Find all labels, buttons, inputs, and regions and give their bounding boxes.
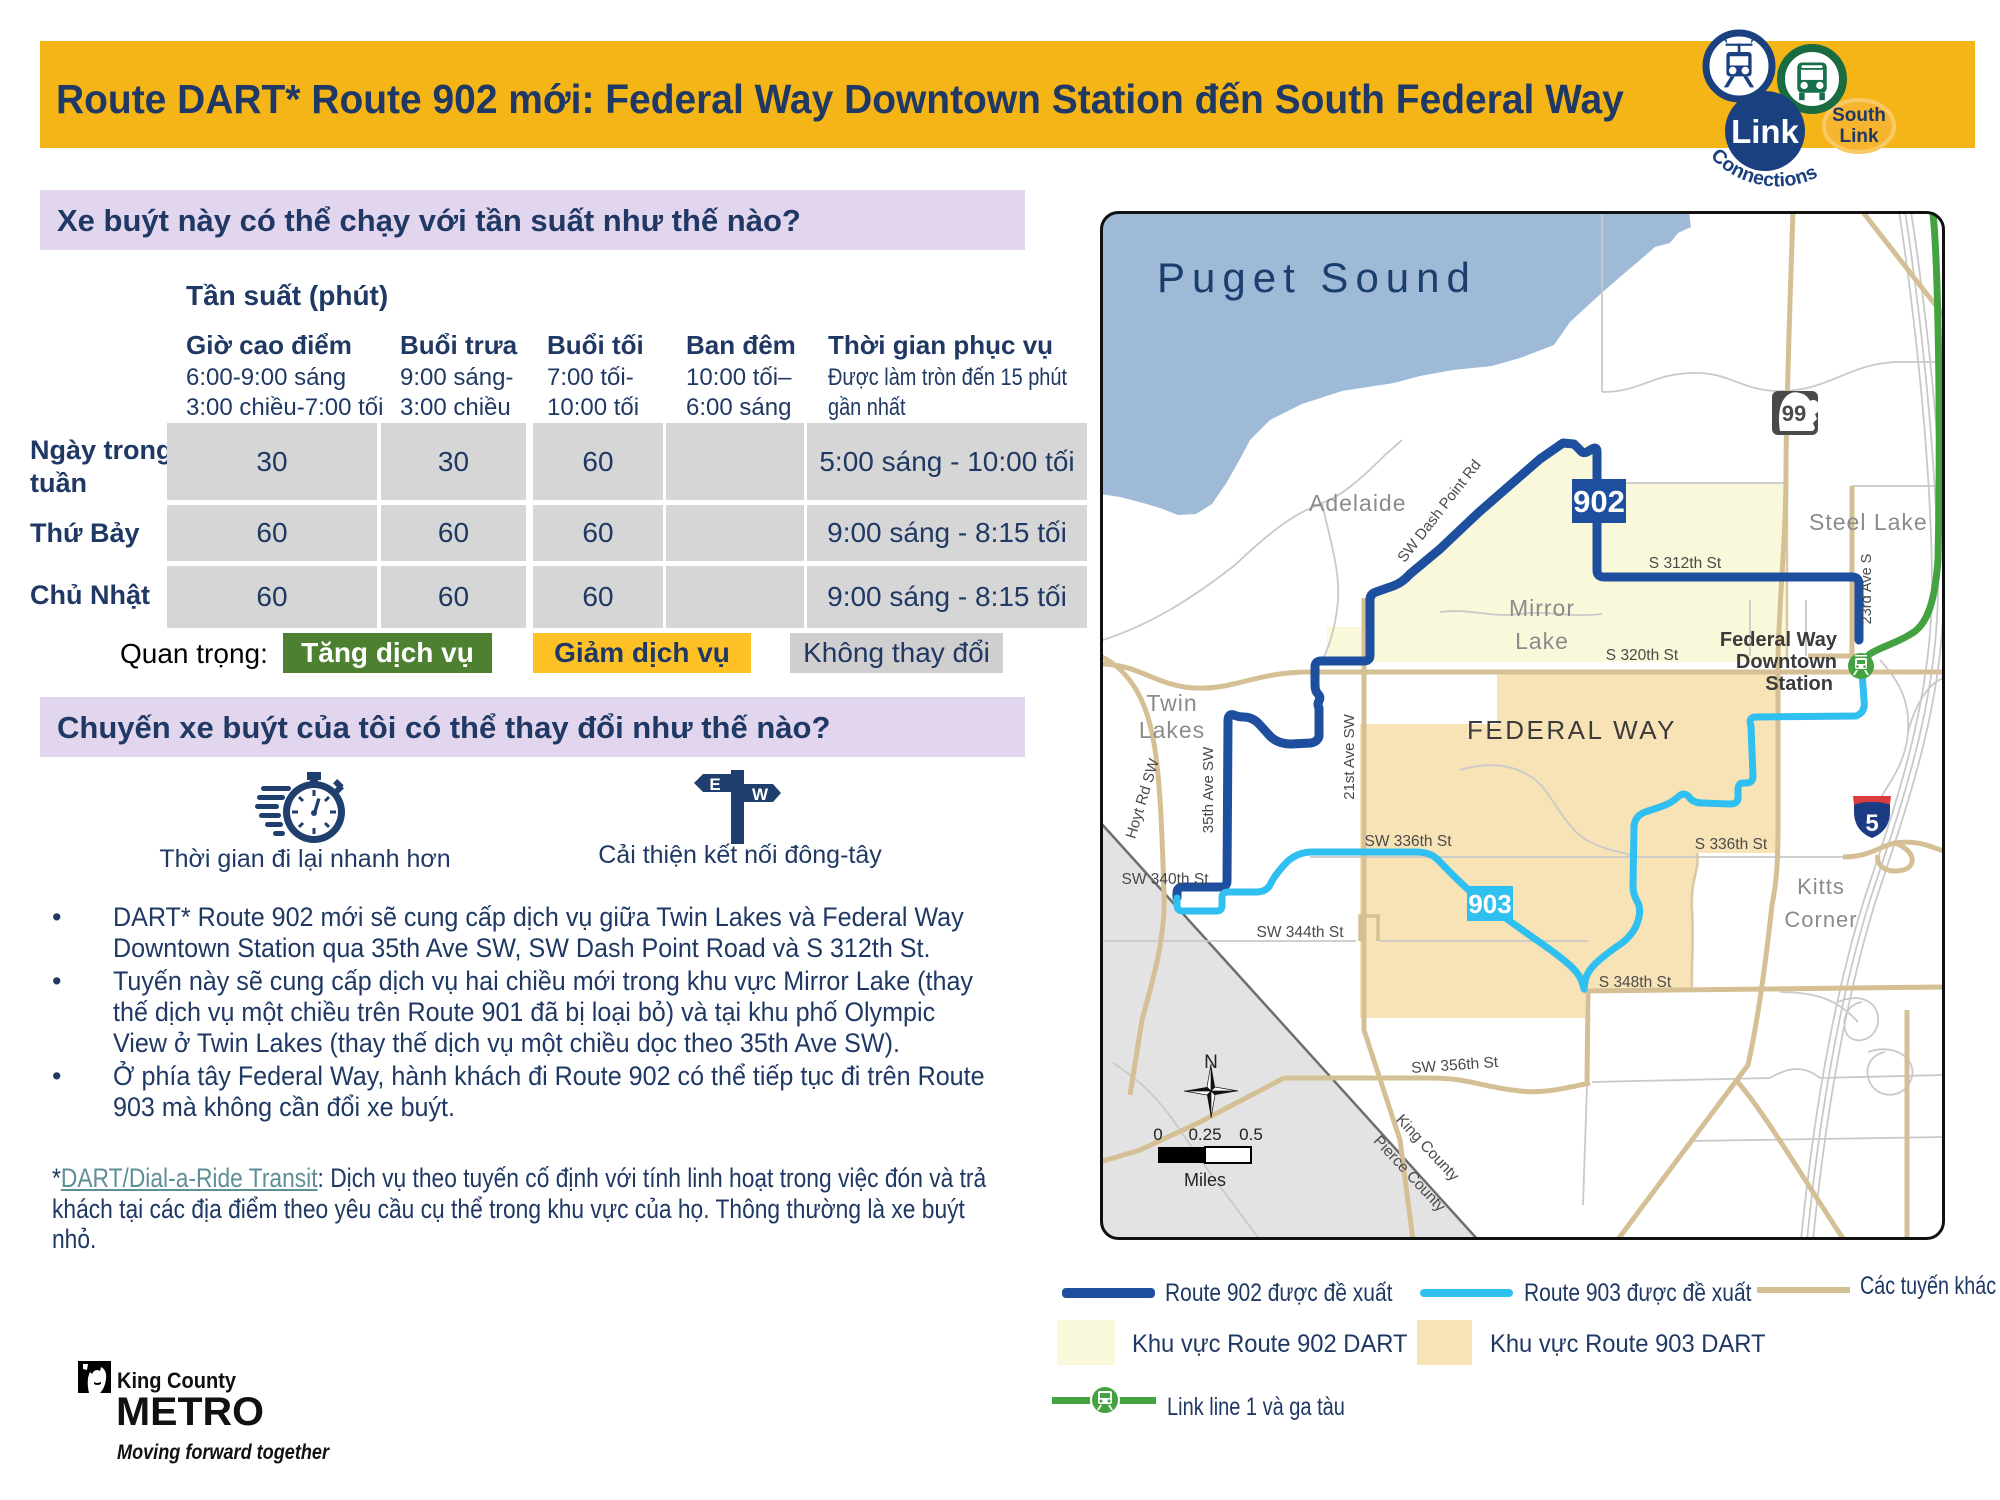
svg-text:Steel Lake: Steel Lake — [1809, 509, 1928, 535]
svg-text:South: South — [1832, 105, 1886, 126]
svg-text:21st Ave SW: 21st Ave SW — [1341, 713, 1358, 799]
svg-text:SW 340th St: SW 340th St — [1121, 871, 1209, 888]
svg-text:Downtown: Downtown — [1736, 651, 1837, 673]
svg-text:0.25: 0.25 — [1188, 1125, 1221, 1144]
svg-text:Twin: Twin — [1146, 690, 1197, 716]
svg-text:23rd Ave S: 23rd Ave S — [1859, 554, 1875, 625]
svg-text:5: 5 — [1865, 810, 1878, 837]
svg-text:Lakes: Lakes — [1139, 717, 1205, 743]
svg-text:S 336th St: S 336th St — [1695, 836, 1768, 853]
svg-text:FEDERAL WAY: FEDERAL WAY — [1467, 715, 1677, 745]
svg-text:Moving forward together: Moving forward together — [117, 1441, 331, 1464]
svg-text:902: 902 — [1573, 484, 1625, 519]
svg-text:W: W — [752, 785, 769, 804]
svg-text:Adelaide: Adelaide — [1309, 490, 1407, 516]
svg-text:35th Ave SW: 35th Ave SW — [1200, 746, 1217, 833]
svg-text:Link: Link — [1731, 113, 1799, 150]
svg-text:SW 344th St: SW 344th St — [1256, 924, 1344, 941]
svg-text:SW 336th St: SW 336th St — [1364, 833, 1452, 850]
svg-text:S 312th St: S 312th St — [1649, 555, 1722, 572]
svg-text:Miles: Miles — [1184, 1170, 1226, 1190]
svg-text:Kitts: Kitts — [1797, 874, 1845, 899]
svg-text:Lake: Lake — [1515, 628, 1569, 654]
svg-text:Mirror: Mirror — [1509, 595, 1575, 621]
svg-text:Puget Sound: Puget Sound — [1157, 254, 1477, 301]
svg-text:Federal Way: Federal Way — [1720, 629, 1838, 651]
svg-text:METRO: METRO — [116, 1390, 264, 1434]
svg-text:903: 903 — [1468, 889, 1511, 919]
svg-text:Link: Link — [1839, 126, 1878, 147]
svg-text:99: 99 — [1782, 401, 1806, 426]
svg-text:0: 0 — [1153, 1125, 1162, 1144]
svg-text:Corner: Corner — [1784, 907, 1857, 932]
svg-text:0.5: 0.5 — [1239, 1125, 1263, 1144]
svg-text:S 348th St: S 348th St — [1599, 974, 1672, 991]
svg-text:Station: Station — [1765, 673, 1833, 695]
svg-text:E: E — [709, 775, 720, 794]
svg-text:S 320th St: S 320th St — [1606, 647, 1679, 664]
